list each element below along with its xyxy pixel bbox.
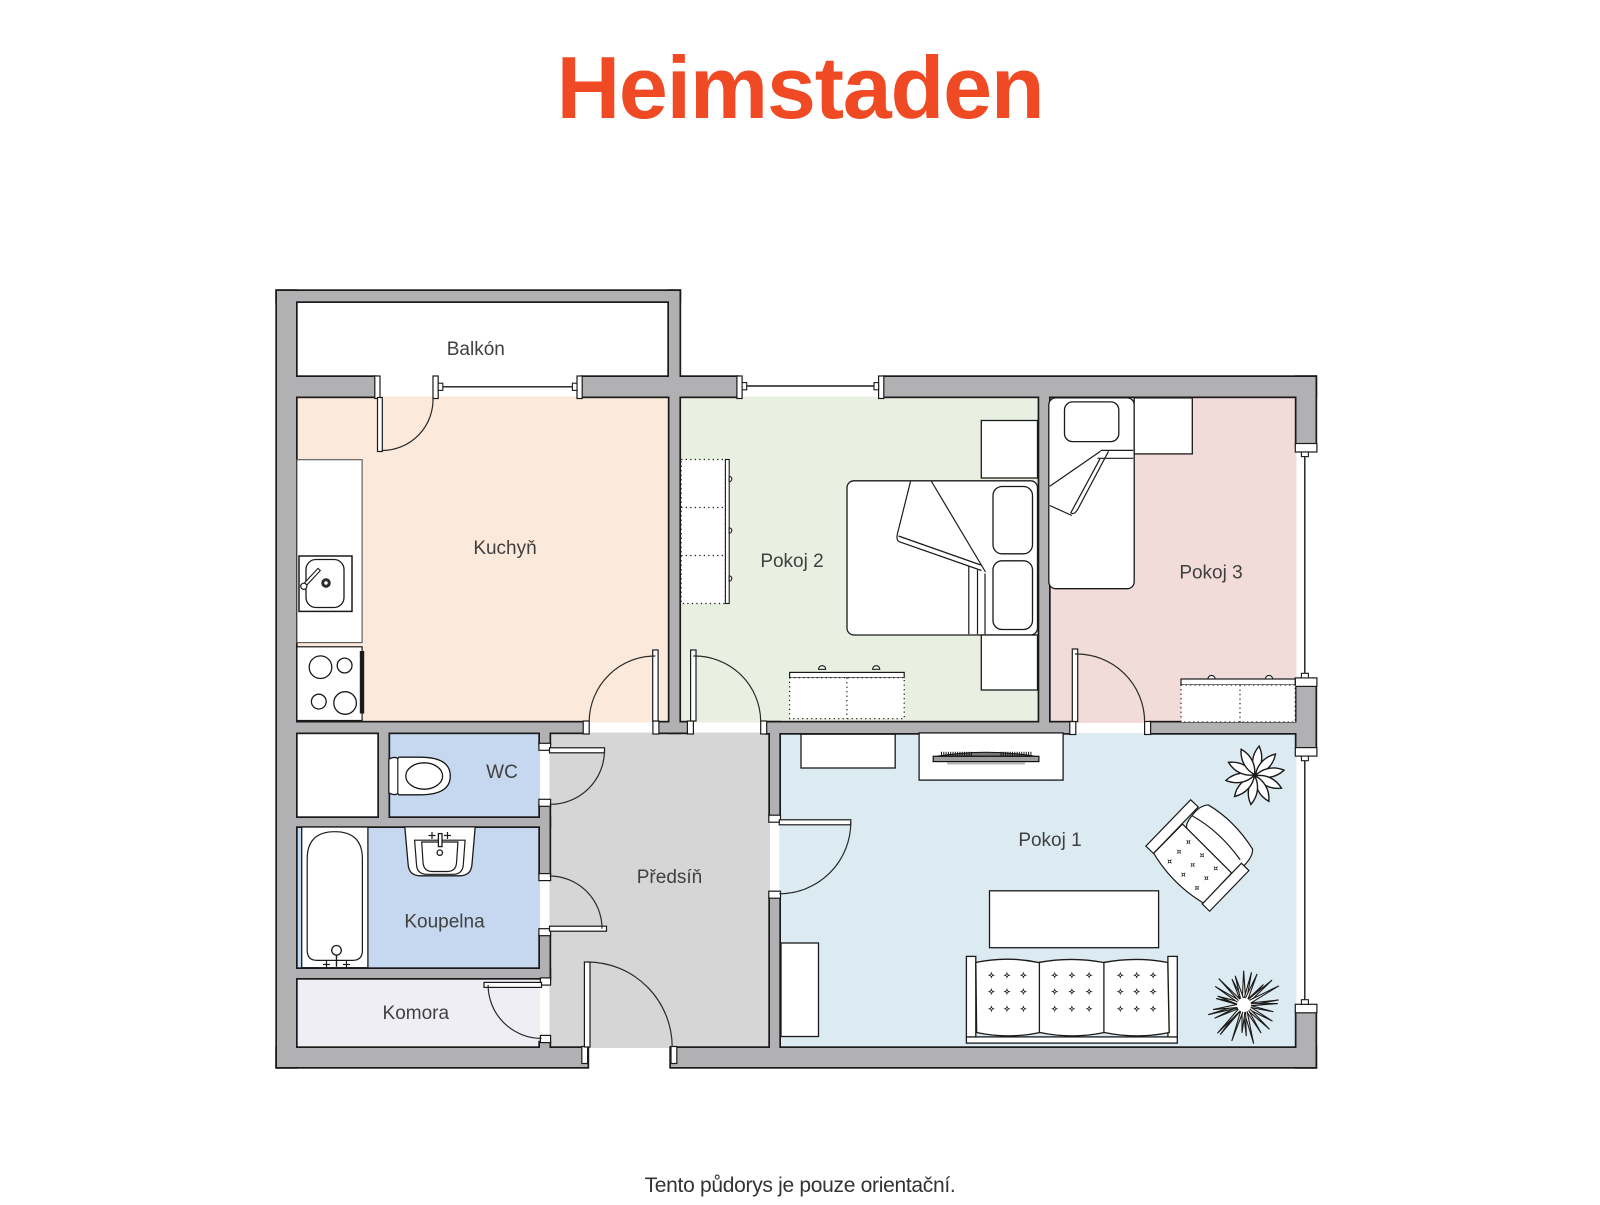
- svg-text:Pokoj 3: Pokoj 3: [1179, 563, 1242, 584]
- svg-text:Koupelna: Koupelna: [404, 911, 485, 932]
- svg-text:Předsíň: Předsíň: [637, 867, 702, 888]
- svg-text:Pokoj 1: Pokoj 1: [1018, 830, 1081, 851]
- svg-text:Pokoj 2: Pokoj 2: [760, 551, 823, 572]
- svg-text:Komora: Komora: [383, 1003, 450, 1024]
- svg-text:Balkón: Balkón: [447, 339, 505, 360]
- svg-text:WC: WC: [486, 762, 518, 783]
- svg-text:Tento půdorys je pouze orienta: Tento půdorys je pouze orientační.: [645, 1174, 956, 1197]
- svg-text:Kuchyň: Kuchyň: [473, 538, 536, 559]
- svg-text:Heimstaden: Heimstaden: [557, 38, 1044, 137]
